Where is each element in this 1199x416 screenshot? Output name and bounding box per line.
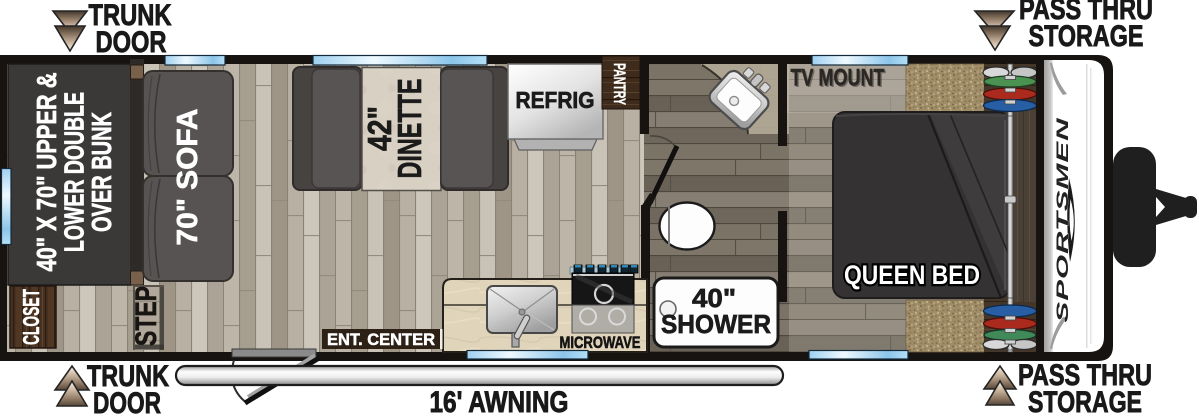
svg-text:QUEEN BED: QUEEN BED bbox=[844, 260, 980, 290]
svg-text:REFRIG: REFRIG bbox=[516, 87, 595, 113]
svg-text:16' AWNING: 16' AWNING bbox=[430, 386, 569, 416]
svg-text:STEP: STEP bbox=[130, 286, 163, 346]
svg-text:TV MOUNT: TV MOUNT bbox=[791, 65, 885, 92]
svg-text:PANTRY: PANTRY bbox=[610, 63, 629, 105]
svg-text:CLOSET: CLOSET bbox=[18, 289, 44, 345]
svg-text:MICROWAVE: MICROWAVE bbox=[560, 333, 641, 352]
svg-text:LOWER DOUBLE: LOWER DOUBLE bbox=[59, 92, 90, 252]
svg-text:40" X 70" UPPER &: 40" X 70" UPPER & bbox=[31, 73, 62, 272]
svg-text:ENT. CENTER: ENT. CENTER bbox=[327, 331, 435, 349]
svg-text:DINETTE: DINETTE bbox=[391, 79, 428, 179]
svg-text:DOOR: DOOR bbox=[96, 26, 167, 59]
svg-text:STORAGE: STORAGE bbox=[1029, 20, 1144, 53]
svg-text:OVER BUNK: OVER BUNK bbox=[86, 112, 117, 232]
svg-text:70" SOFA: 70" SOFA bbox=[172, 108, 204, 245]
svg-text:DOOR: DOOR bbox=[93, 387, 161, 416]
svg-text:SPORTSMEN: SPORTSMEN bbox=[1054, 116, 1072, 322]
svg-text:SHOWER: SHOWER bbox=[661, 309, 771, 339]
svg-text:STORAGE: STORAGE bbox=[1028, 386, 1142, 416]
